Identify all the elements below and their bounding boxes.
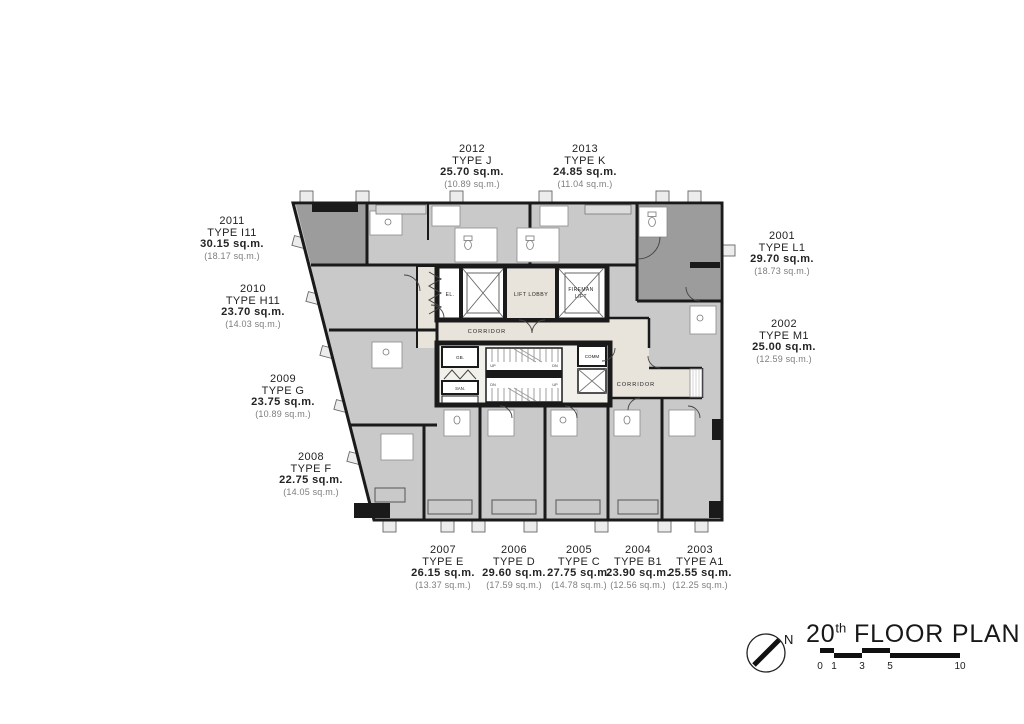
unit-area-secondary: (10.89 sq.m.)	[407, 179, 537, 191]
unit-number: 2008	[246, 452, 376, 464]
fireman-lift-label-2: LIFT	[575, 294, 587, 300]
unit-label-2010: 2010 TYPE H11 23.70 sq.m. (14.03 sq.m.)	[188, 284, 318, 331]
unit-area: 23.70 sq.m.	[188, 307, 318, 319]
unit-area: 23.75 sq.m.	[218, 397, 348, 409]
stairs-up-label-1: UP	[490, 364, 496, 368]
unit-area-secondary: (13.37 sq.m.)	[378, 580, 508, 592]
scale-segment	[820, 648, 834, 653]
scale-segment	[890, 653, 960, 658]
unit-number: 2007	[378, 545, 508, 557]
stairs-up-label-2: UP	[552, 383, 558, 387]
floor-plan-canvas: EL. LIFT LOBBY FIREMAN LIFT CORRIDOR COR…	[0, 0, 1024, 724]
unit-label-2009: 2009 TYPE G 23.75 sq.m. (10.89 sq.m.)	[218, 374, 348, 421]
unit-area: 25.70 sq.m.	[407, 167, 537, 179]
unit-area: 24.85 sq.m.	[520, 167, 650, 179]
unit-number: 2010	[188, 284, 318, 296]
unit-area-secondary: (18.73 sq.m.)	[717, 266, 847, 278]
title-text: FLOOR PLAN	[846, 620, 1020, 648]
unit-area-secondary: (12.59 sq.m.)	[719, 354, 849, 366]
unit-area-secondary: (14.03 sq.m.)	[188, 319, 318, 331]
unit-number: 2009	[218, 374, 348, 386]
unit-area-secondary: (18.17 sq.m.)	[167, 251, 297, 263]
scale-tick: 10	[950, 661, 970, 672]
scale-tick: 3	[852, 661, 872, 672]
unit-area-secondary: (14.05 sq.m.)	[246, 487, 376, 499]
unit-area: 30.15 sq.m.	[167, 239, 297, 251]
unit-label-2011: 2011 TYPE I11 30.15 sq.m. (18.17 sq.m.)	[167, 216, 297, 263]
lift-lobby-label: LIFT LOBBY	[514, 292, 548, 298]
unit-label-2002: 2002 TYPE M1 25.00 sq.m. (12.59 sq.m.)	[719, 319, 849, 366]
unit-area-secondary: (10.89 sq.m.)	[218, 409, 348, 421]
scale-tick: 5	[880, 661, 900, 672]
page-title: 20th FLOOR PLAN	[806, 620, 1020, 649]
corridor-right-label: CORRIDOR	[617, 382, 655, 388]
stairs-dn-label-1: DN	[552, 364, 558, 368]
scale-segment	[862, 648, 890, 653]
unit-label-2013: 2013 TYPE K 24.85 sq.m. (11.04 sq.m.)	[520, 144, 650, 191]
title-ordinal-suffix: th	[835, 621, 846, 636]
unit-number: 2002	[719, 319, 849, 331]
unit-area: 29.70 sq.m.	[717, 254, 847, 266]
north-arrow-icon: N	[744, 630, 800, 678]
floor-plan-drawing: EL. LIFT LOBBY FIREMAN LIFT CORRIDOR COR…	[0, 0, 1024, 724]
title-block: N 20th FLOOR PLAN 0 1 3 5 10	[740, 618, 980, 688]
comm-room-label: COMM	[585, 354, 600, 359]
unit-label-2008: 2008 TYPE F 22.75 sq.m. (14.05 sq.m.)	[246, 452, 376, 499]
unit-area: 25.00 sq.m.	[719, 342, 849, 354]
unit-label-2007: 2007 TYPE E 26.15 sq.m. (13.37 sq.m.)	[378, 545, 508, 592]
north-label: N	[784, 632, 793, 647]
scale-segment	[834, 653, 862, 658]
unit-number: 2011	[167, 216, 297, 228]
unit-number: 2013	[520, 144, 650, 156]
unit-label-2001: 2001 TYPE L1 29.70 sq.m. (18.73 sq.m.)	[717, 231, 847, 278]
unit-number: 2012	[407, 144, 537, 156]
unit-area-secondary: (11.04 sq.m.)	[520, 179, 650, 191]
unit-number: 2001	[717, 231, 847, 243]
fireman-lift-label-1: FIREMAN	[568, 287, 593, 293]
unit-label-2012: 2012 TYPE J 25.70 sq.m. (10.89 sq.m.)	[407, 144, 537, 191]
san-room-label: SAN.	[455, 386, 465, 391]
el-room-label: EL.	[446, 292, 455, 298]
gb-room-label: GB.	[456, 355, 464, 360]
stairs-dn-label-2: DN	[490, 383, 496, 387]
title-floor-number: 20	[806, 620, 835, 648]
scale-tick: 1	[824, 661, 844, 672]
unit-area: 26.15 sq.m.	[378, 568, 508, 580]
stair-core: GB. SAN. COMM UP DN DN UP	[437, 343, 610, 405]
scale-bar: 0 1 3 5 10	[820, 648, 970, 676]
corridor-main-label: CORRIDOR	[468, 329, 506, 335]
unit-area: 22.75 sq.m.	[246, 475, 376, 487]
